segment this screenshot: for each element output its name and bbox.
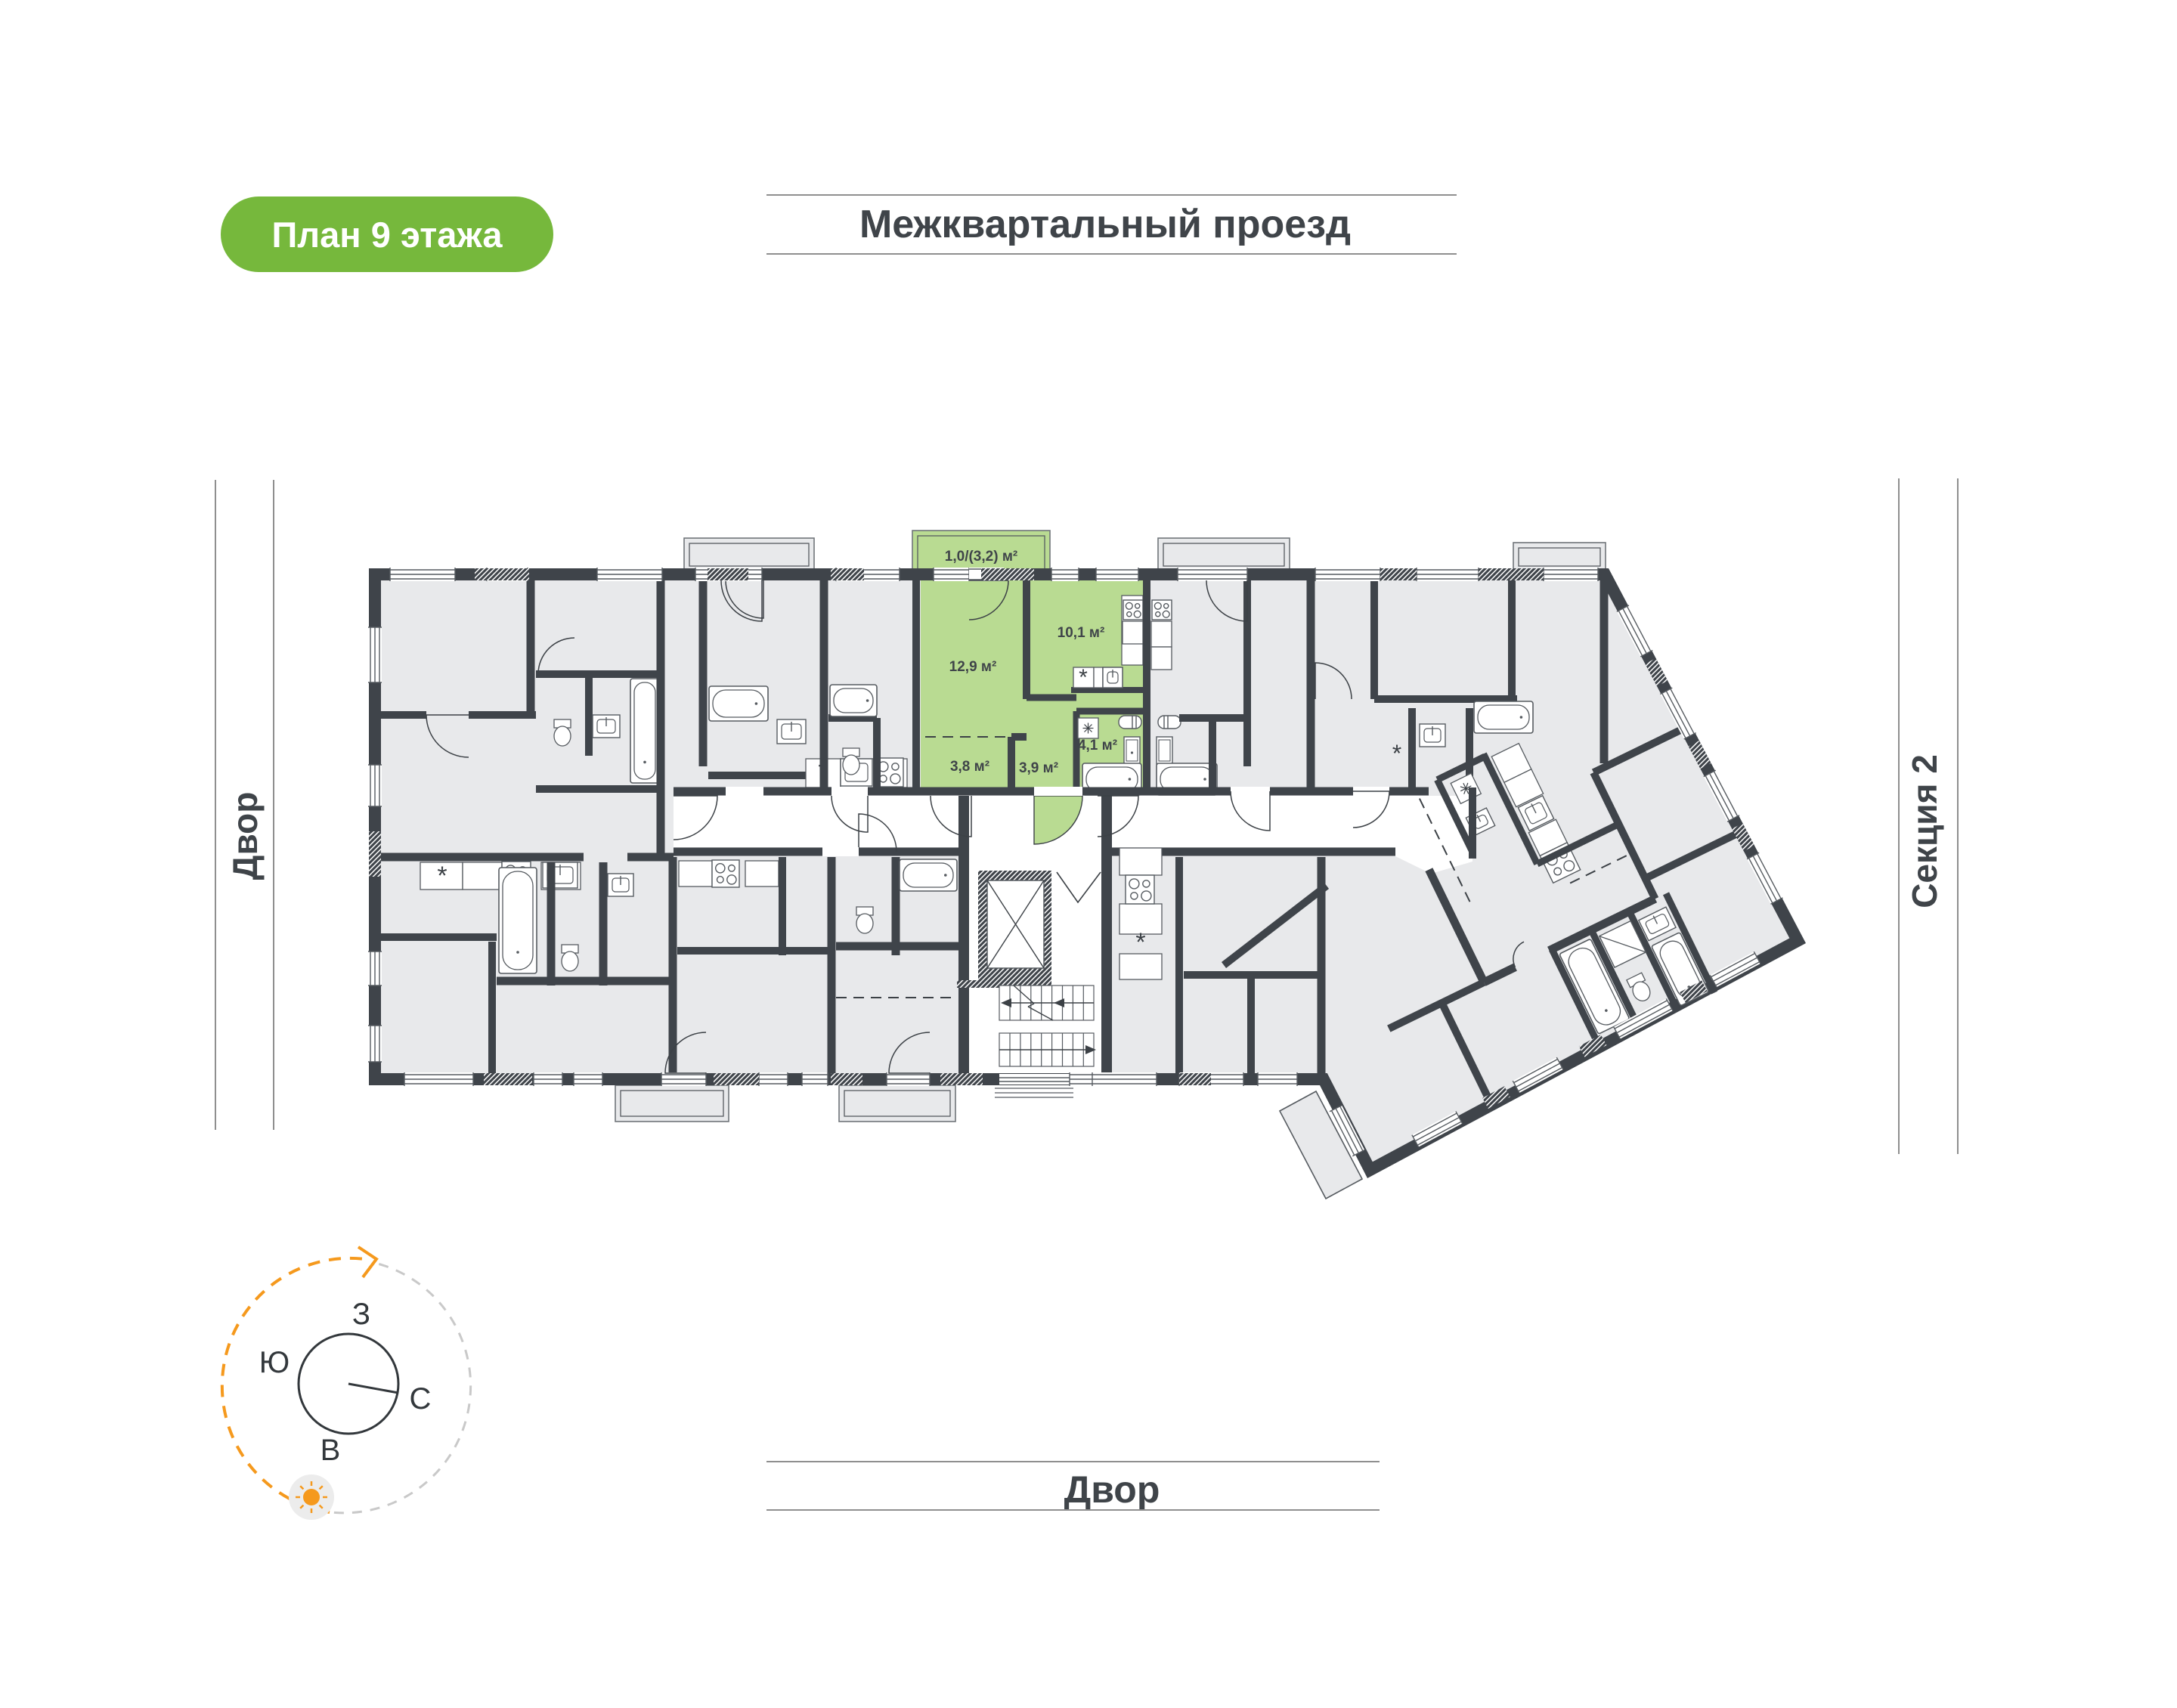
svg-text:3,9 м²: 3,9 м² bbox=[1019, 760, 1058, 776]
svg-text:4,1 м²: 4,1 м² bbox=[1078, 738, 1117, 753]
svg-text:В: В bbox=[321, 1434, 341, 1467]
svg-text:С: С bbox=[410, 1382, 432, 1416]
svg-text:Ю: Ю bbox=[259, 1346, 290, 1379]
svg-text:*: * bbox=[1135, 928, 1145, 957]
svg-text:Межквартальный проезд: Межквартальный проезд bbox=[859, 203, 1351, 246]
svg-text:Секция 2: Секция 2 bbox=[1905, 754, 1944, 908]
svg-text:*: * bbox=[1079, 665, 1088, 690]
svg-text:З: З bbox=[352, 1298, 370, 1331]
svg-text:План 9 этажа: План 9 этажа bbox=[272, 215, 503, 255]
svg-text:10,1 м²: 10,1 м² bbox=[1058, 625, 1105, 641]
svg-text:*: * bbox=[437, 862, 447, 890]
svg-text:*: * bbox=[1392, 740, 1401, 767]
svg-text:12,9 м²: 12,9 м² bbox=[949, 659, 997, 675]
svg-text:Двор: Двор bbox=[1064, 1468, 1160, 1511]
svg-text:1,0/(3,2) м²: 1,0/(3,2) м² bbox=[945, 549, 1017, 565]
svg-text:Двор: Двор bbox=[225, 792, 265, 880]
svg-text:3,8 м²: 3,8 м² bbox=[950, 759, 989, 775]
